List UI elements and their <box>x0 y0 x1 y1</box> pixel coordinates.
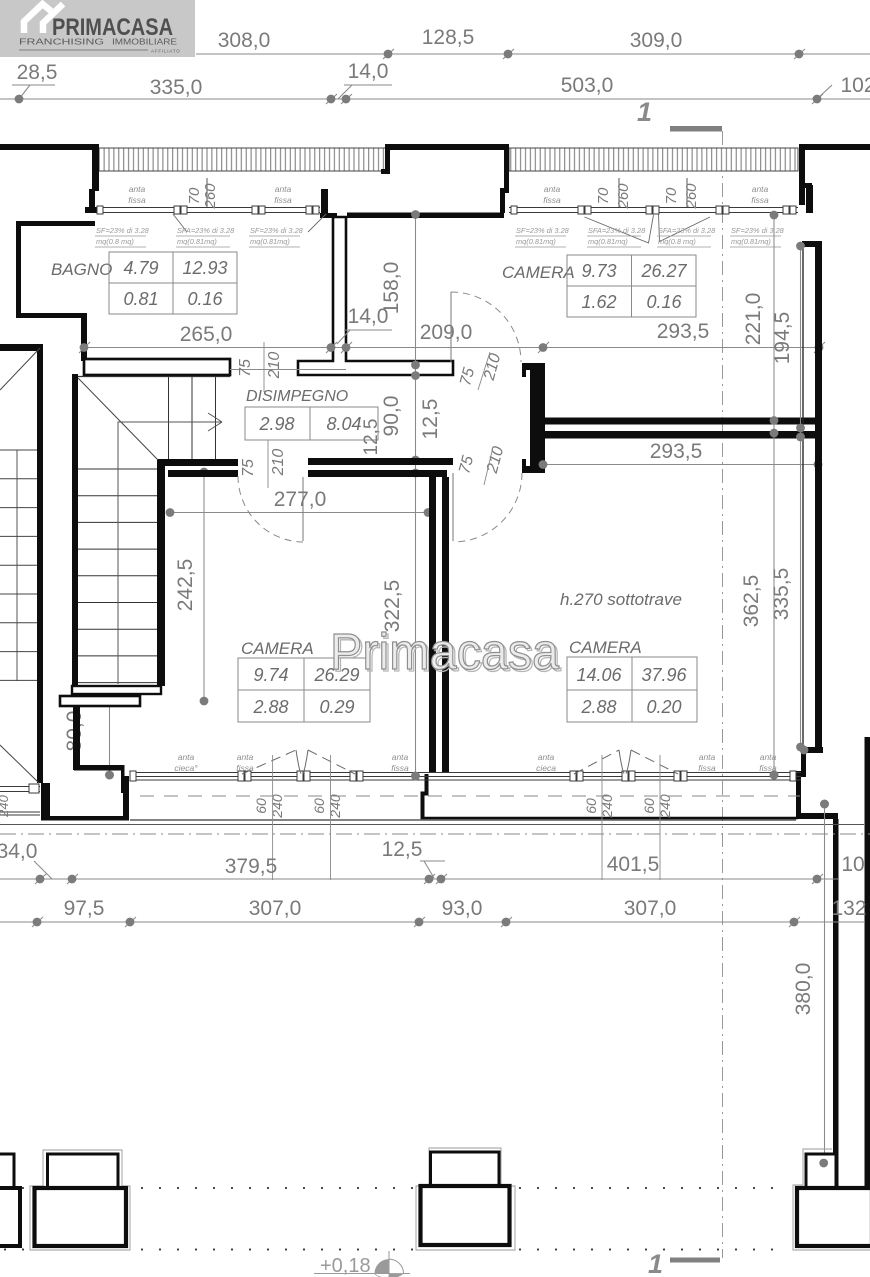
svg-text:240: 240 <box>657 794 673 819</box>
svg-text:12,5: 12,5 <box>361 419 382 456</box>
svg-text:SFA=23% di 3.28: SFA=23% di 3.28 <box>658 226 716 235</box>
svg-text:fissa: fissa <box>698 763 716 773</box>
svg-text:240: 240 <box>599 794 615 819</box>
svg-text:mq(0.81mq): mq(0.81mq) <box>177 237 217 246</box>
svg-text:CAMERA: CAMERA <box>569 638 642 657</box>
svg-text:128,5: 128,5 <box>422 26 475 49</box>
svg-text:12.93: 12.93 <box>182 258 227 278</box>
svg-text:2.98: 2.98 <box>258 414 294 434</box>
svg-text:12,5: 12,5 <box>419 399 442 440</box>
svg-text:0.16: 0.16 <box>187 289 223 309</box>
svg-text:9.74: 9.74 <box>253 665 288 685</box>
svg-text:132: 132 <box>831 897 866 920</box>
svg-text:8.04: 8.04 <box>326 414 361 434</box>
svg-text:cieca: cieca <box>536 763 556 773</box>
svg-text:mq(0.81mq): mq(0.81mq) <box>516 237 556 246</box>
svg-text:2.88: 2.88 <box>580 697 616 717</box>
svg-text:cieca°: cieca° <box>174 763 198 773</box>
svg-text:h.270 sottotrave: h.270 sottotrave <box>560 590 682 609</box>
svg-text:SFA=23% di 3.28: SFA=23% di 3.28 <box>177 226 235 235</box>
svg-text:242,5: 242,5 <box>174 559 197 612</box>
svg-text:mq(0.8 mq): mq(0.8 mq) <box>96 237 134 246</box>
svg-text:CAMERA: CAMERA <box>502 263 575 282</box>
svg-text:0.16: 0.16 <box>646 292 682 312</box>
svg-text:fissa: fissa <box>751 195 769 205</box>
svg-text:60: 60 <box>583 798 599 814</box>
svg-text:70: 70 <box>595 187 612 204</box>
svg-text:293,5: 293,5 <box>657 320 710 343</box>
svg-text:307,0: 307,0 <box>624 897 677 920</box>
svg-text:fissa: fissa <box>543 195 561 205</box>
svg-text:anta: anta <box>544 184 561 194</box>
svg-text:BAGNO: BAGNO <box>51 260 112 279</box>
svg-text:75: 75 <box>237 359 254 377</box>
svg-text:anta: anta <box>129 184 146 194</box>
svg-text:SF=23% di 3.28: SF=23% di 3.28 <box>96 226 150 235</box>
svg-text:221,0: 221,0 <box>742 293 765 346</box>
svg-text:anta: anta <box>699 752 716 762</box>
svg-text:14.06: 14.06 <box>576 665 622 685</box>
svg-text:anta: anta <box>538 752 555 762</box>
svg-text:260: 260 <box>683 183 700 210</box>
svg-text:12,5: 12,5 <box>382 838 423 861</box>
svg-text:0.29: 0.29 <box>319 697 354 717</box>
svg-text:anta: anta <box>760 752 777 762</box>
svg-text:75: 75 <box>240 459 257 477</box>
svg-text:335,5: 335,5 <box>770 568 793 621</box>
svg-text:SF=23% di 3.28: SF=23% di 3.28 <box>250 226 304 235</box>
svg-text:0.81: 0.81 <box>123 289 158 309</box>
svg-text:401,5: 401,5 <box>607 853 660 876</box>
svg-text:anta: anta <box>392 752 409 762</box>
svg-text:308,0: 308,0 <box>218 29 271 52</box>
svg-text:14,0: 14,0 <box>348 60 389 83</box>
svg-text:1: 1 <box>648 1249 663 1277</box>
svg-text:60: 60 <box>311 798 327 814</box>
svg-text:9.73: 9.73 <box>581 261 616 281</box>
svg-text:fissa: fissa <box>391 763 409 773</box>
svg-text:60: 60 <box>641 798 657 814</box>
svg-text:240: 240 <box>269 794 285 819</box>
svg-text:293,5: 293,5 <box>650 440 703 463</box>
svg-text:Primacasa: Primacasa <box>330 623 560 680</box>
svg-text:93,0: 93,0 <box>442 897 483 920</box>
svg-text:0.20: 0.20 <box>646 697 681 717</box>
svg-text:1: 1 <box>637 97 652 127</box>
svg-text:fissa: fissa <box>236 763 254 773</box>
svg-text:60: 60 <box>253 798 269 814</box>
svg-text:240: 240 <box>327 794 343 819</box>
svg-text:260: 260 <box>202 183 219 210</box>
svg-text:mq(0.81mq): mq(0.81mq) <box>731 237 771 246</box>
svg-text:260: 260 <box>615 183 632 210</box>
svg-text:209,0: 209,0 <box>420 321 473 344</box>
svg-text:IMMOBILIARE: IMMOBILIARE <box>112 38 177 47</box>
svg-text:26.27: 26.27 <box>640 261 687 281</box>
svg-text:SF=23% di 3.28: SF=23% di 3.28 <box>731 226 785 235</box>
svg-text:mq(0.8 mq): mq(0.8 mq) <box>658 237 696 246</box>
svg-text:102: 102 <box>840 74 870 97</box>
svg-text:277,0: 277,0 <box>274 488 327 511</box>
svg-text:210: 210 <box>270 449 287 477</box>
svg-text:194,5: 194,5 <box>771 312 794 365</box>
svg-text:90,0: 90,0 <box>380 396 403 437</box>
svg-text:DISIMPEGNO: DISIMPEGNO <box>246 388 348 405</box>
svg-text:fissa: fissa <box>128 195 146 205</box>
svg-text:1.62: 1.62 <box>581 292 616 312</box>
svg-text:379,5: 379,5 <box>225 855 278 878</box>
svg-text:97,5: 97,5 <box>64 897 105 920</box>
svg-text:fissa: fissa <box>274 195 292 205</box>
svg-text:28,5: 28,5 <box>17 61 58 84</box>
svg-text:307,0: 307,0 <box>249 897 302 920</box>
svg-text:SFA=23% di 3.28: SFA=23% di 3.28 <box>588 226 646 235</box>
svg-text:AFFILIATO: AFFILIATO <box>151 49 181 54</box>
svg-text:2.88: 2.88 <box>252 697 288 717</box>
svg-text:4.79: 4.79 <box>123 258 158 278</box>
svg-text:158,0: 158,0 <box>380 262 403 315</box>
svg-text:SF=23% di 3.28: SF=23% di 3.28 <box>516 226 570 235</box>
svg-text:240: 240 <box>0 794 11 817</box>
svg-text:10: 10 <box>841 853 864 876</box>
svg-text:anta: anta <box>237 752 254 762</box>
svg-text:335,0: 335,0 <box>150 76 203 99</box>
svg-text:anta: anta <box>752 184 769 194</box>
svg-text:503,0: 503,0 <box>561 74 614 97</box>
svg-text:mq(0.81mq): mq(0.81mq) <box>588 237 628 246</box>
svg-text:anta: anta <box>178 752 195 762</box>
svg-text:mq(0.81mq): mq(0.81mq) <box>250 237 290 246</box>
svg-text:FRANCHISING: FRANCHISING <box>19 38 104 47</box>
svg-text:210: 210 <box>266 352 283 380</box>
svg-text:362,5: 362,5 <box>740 575 763 628</box>
svg-text:70: 70 <box>663 187 680 204</box>
svg-text:CAMERA: CAMERA <box>241 639 314 658</box>
svg-text:anta: anta <box>275 184 292 194</box>
svg-text:34,0: 34,0 <box>0 840 37 863</box>
svg-text:70: 70 <box>186 187 203 204</box>
svg-text:380,0: 380,0 <box>792 963 815 1016</box>
svg-text:309,0: 309,0 <box>630 29 683 52</box>
svg-text:265,0: 265,0 <box>180 323 233 346</box>
svg-text:37.96: 37.96 <box>641 665 687 685</box>
